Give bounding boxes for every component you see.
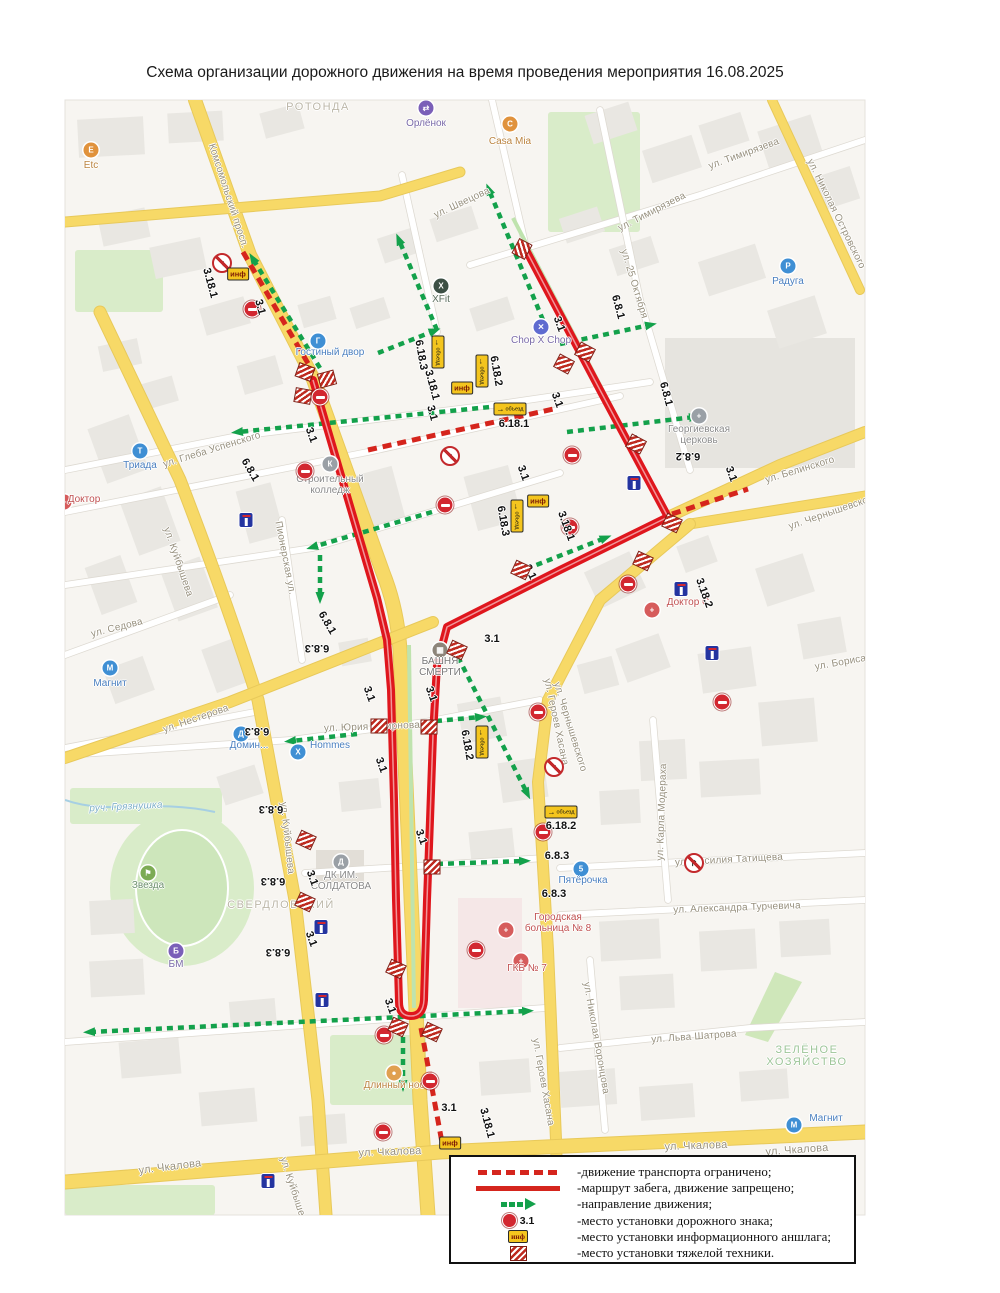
- sign-3.18.1: ↰: [440, 446, 460, 466]
- sign-heavy-equipment-marker: [317, 370, 337, 389]
- legend: -движение транспорта ограничено;-маршрут…: [449, 1155, 856, 1264]
- sign-code-label: 3.1: [723, 465, 740, 483]
- sign-code-label: 6.8.3: [305, 642, 329, 654]
- sign-6.18.1: →объезд: [493, 403, 526, 416]
- sign-3.1: [620, 576, 637, 593]
- sign-heavy-equipment-marker: [632, 551, 654, 572]
- sign-6.8.1: [628, 476, 641, 490]
- sign-6.18.2: →объезд: [544, 806, 577, 819]
- sign-code-label: 6.18.2: [487, 355, 504, 387]
- legend-inf-sign: инф: [508, 1230, 528, 1243]
- sign-3.1: [437, 497, 454, 514]
- sign-code-label: 3.1: [423, 685, 440, 703]
- sign-6.18.2: →объезд: [476, 725, 489, 758]
- sign-code-label: 6.8.3: [261, 875, 285, 887]
- sign-code-label: 3.1: [373, 756, 390, 774]
- sign-6.8.3: [316, 993, 329, 1007]
- sign-6.8.2: [706, 646, 719, 660]
- sign-code-label: 3.1: [441, 1102, 456, 1114]
- legend-item-label: -место установки дорожного знака;: [577, 1213, 773, 1229]
- legend-route-line: [476, 1186, 560, 1191]
- sign-code-label: 6.8.3: [545, 850, 569, 862]
- sign-heavy-equipment-marker: [385, 959, 407, 980]
- sign-heavy-equipment-marker: [295, 830, 317, 851]
- sign-code-label: 6.8.3: [259, 803, 283, 815]
- sign-heavy-equipment-marker: [294, 362, 315, 382]
- legend-road-sign: 3.1: [502, 1213, 535, 1228]
- legend-direction-arrow: [501, 1198, 536, 1210]
- sign-6.8.1: [240, 513, 253, 527]
- legend-item-label: -движение транспорта ограничено;: [577, 1164, 771, 1180]
- sign-3.18.1: ↰: [544, 757, 564, 777]
- sign-3.18.2: ↱: [684, 853, 704, 873]
- sign-3.1: [375, 1124, 392, 1141]
- legend-item: -место установки тяжелой техники.: [459, 1245, 848, 1261]
- sign-code-label: 6.8.1: [657, 381, 675, 408]
- sign-code-label: 6.18.3: [494, 505, 511, 537]
- sign-code-label: 6.18.3: [412, 339, 429, 371]
- sign-heavy-equipment-marker: [574, 341, 596, 362]
- sign-code-label: 6.8.3: [245, 725, 269, 737]
- sign-инф: инф: [227, 268, 249, 281]
- page: Схема организации дорожного движения на …: [0, 0, 1000, 1293]
- sign-heavy-equipment-marker: [553, 353, 575, 374]
- sign-code-label: 3.18.1: [477, 1107, 497, 1140]
- sign-инф: инф: [451, 382, 473, 395]
- sign-инф: инф: [527, 495, 549, 508]
- sign-3.1: [297, 463, 314, 480]
- sign-heavy-equipment-marker: [293, 387, 312, 405]
- sign-3.1: [422, 1073, 439, 1090]
- sign-code-label: 3.1: [551, 315, 568, 333]
- sign-code-label: 3.1: [484, 633, 499, 645]
- sign-code-label: 6.8.3: [266, 946, 290, 958]
- map-signs-layer: ↰3.18.1инф3.13.16.8.1→объезд6.18.3↰3.18.…: [0, 0, 1000, 1293]
- legend-item-label: -место установки информационного аншлага…: [577, 1229, 831, 1245]
- sign-code-label: 3.18.2: [693, 577, 715, 610]
- sign-3.1: [530, 704, 547, 721]
- sign-code-label: 3.1: [303, 426, 320, 444]
- sign-6.8.1: [675, 582, 688, 596]
- legend-item: инф-место установки информационного аншл…: [459, 1229, 848, 1245]
- sign-code-label: 3.18.1: [422, 369, 442, 402]
- sign-code-label: 3.1: [382, 997, 399, 1015]
- sign-code-label: 6.8.1: [316, 609, 339, 636]
- sign-инф: инф: [439, 1137, 461, 1150]
- sign-code-label: 3.1: [304, 869, 321, 887]
- legend-item: -движение транспорта ограничено;: [459, 1164, 848, 1180]
- sign-6.18.3: →объезд: [511, 499, 524, 532]
- sign-heavy-equipment-marker: [421, 720, 438, 735]
- sign-code-label: 6.18.2: [546, 820, 577, 832]
- sign-heavy-equipment-marker: [661, 513, 683, 534]
- sign-heavy-equipment-marker: [424, 860, 441, 875]
- sign-3.1: [468, 942, 485, 959]
- sign-6.8.1: [315, 920, 328, 934]
- legend-item-label: -маршрут забега, движение запрещено;: [577, 1180, 794, 1196]
- legend-item: -маршрут забега, движение запрещено;: [459, 1180, 848, 1196]
- legend-heavy-equipment: [510, 1246, 527, 1261]
- sign-code-label: 3.1: [424, 404, 440, 422]
- sign-code-label: 3.1: [252, 298, 268, 316]
- sign-6.18.3: →объезд: [432, 335, 445, 368]
- sign-code-label: 3.1: [549, 391, 566, 409]
- legend-restricted-line: [478, 1170, 558, 1175]
- sign-heavy-equipment-marker: [294, 892, 316, 913]
- sign-code-label: 3.1: [515, 464, 532, 482]
- sign-code-label: 6.18.1: [499, 418, 530, 430]
- sign-code-label: 6.8.1: [609, 294, 627, 321]
- legend-item: 3.1-место установки дорожного знака;: [459, 1213, 848, 1229]
- sign-3.1: [714, 694, 731, 711]
- sign-code-label: 3.1: [413, 828, 430, 846]
- sign-heavy-equipment-marker: [511, 238, 532, 260]
- sign-3.1: [564, 447, 581, 464]
- sign-6.8.3: [262, 1174, 275, 1188]
- sign-code-label: 6.8.3: [542, 888, 566, 900]
- sign-code-label: 6.8.1: [239, 456, 262, 483]
- sign-code-label: 6.18.2: [458, 729, 475, 761]
- sign-3.1: [312, 389, 329, 406]
- legend-item-label: -направление движения;: [577, 1196, 712, 1212]
- sign-heavy-equipment-marker: [421, 1022, 443, 1043]
- sign-heavy-equipment-marker: [371, 719, 388, 734]
- sign-code-label: 3.1: [361, 685, 378, 703]
- sign-heavy-equipment-marker: [446, 640, 468, 661]
- sign-code-label: 6.8.2: [676, 450, 700, 462]
- sign-6.18.2: →объезд: [476, 354, 489, 387]
- legend-item-label: -место установки тяжелой техники.: [577, 1245, 774, 1261]
